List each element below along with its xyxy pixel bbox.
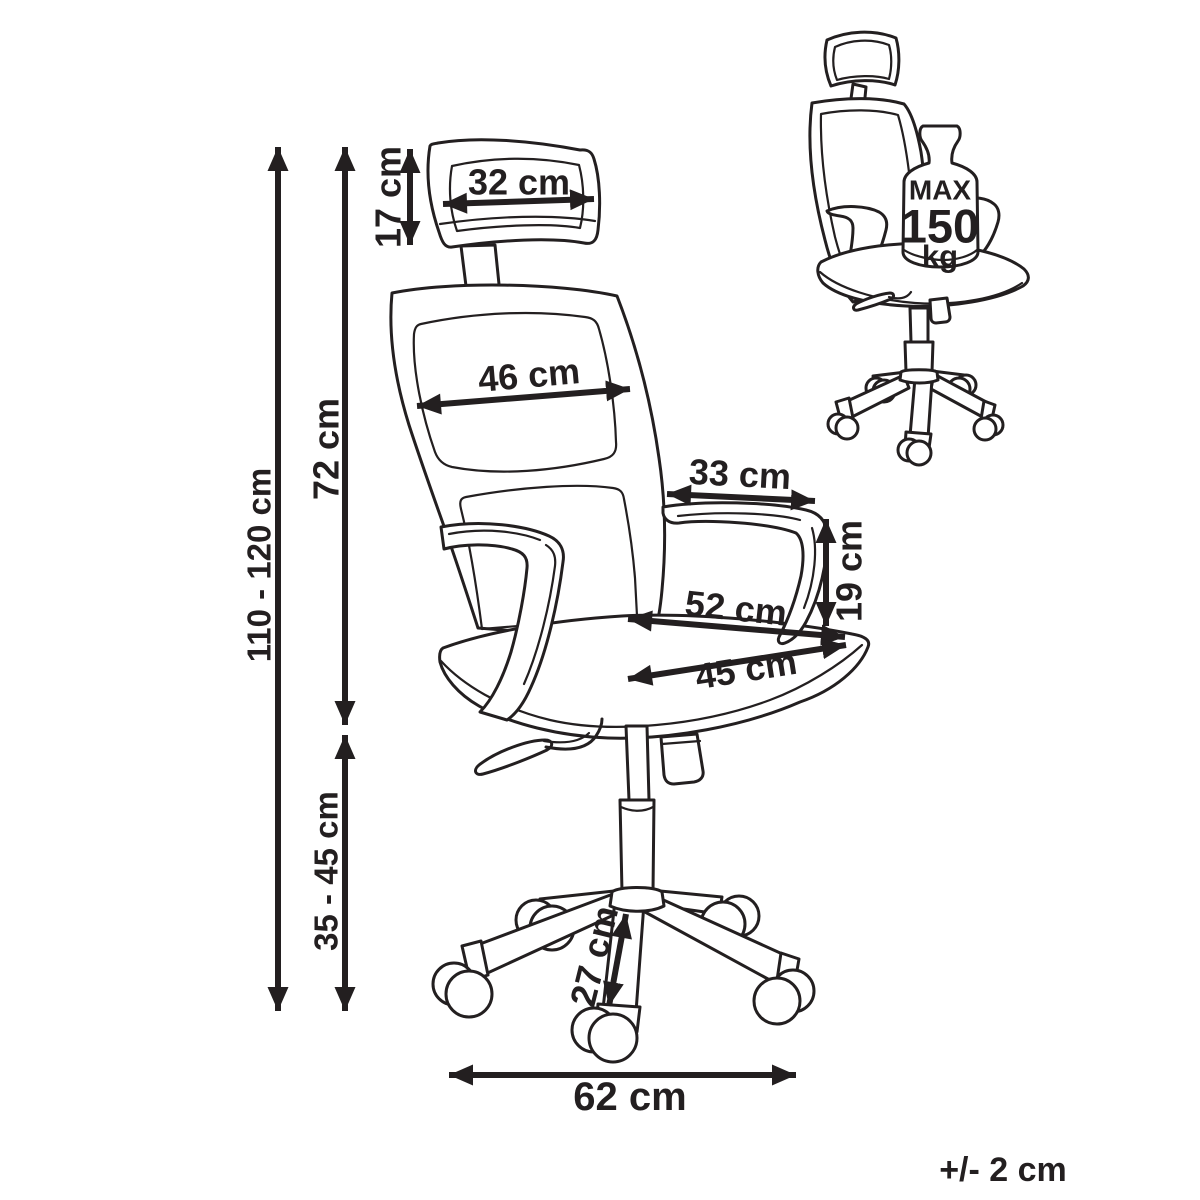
caster-right: [754, 970, 814, 1024]
dim-overall-height: 110 - 120 cm: [241, 147, 279, 1011]
dim-base-width: 62 cm: [449, 1075, 796, 1119]
dim-armrest-height: 19 cm: [826, 519, 870, 626]
dim-armrest-length: 33 cm: [667, 451, 815, 501]
dim-base-width-label: 62 cm: [573, 1075, 686, 1119]
dim-headrest-height: 17 cm: [368, 146, 411, 248]
dim-headrest-height-label: 17 cm: [368, 146, 409, 248]
small-caster-front: [898, 439, 931, 465]
tolerance-note: +/- 2 cm: [939, 1151, 1067, 1189]
chair-dimension-diagram: MAX 150 kg 32 cm 17 cm 46 cm 110 - 120 c…: [0, 0, 1200, 1200]
dim-backrest-height: 72 cm: [306, 147, 347, 725]
dim-armrest-height-label: 19 cm: [829, 520, 870, 622]
dim-backrest-height-label: 72 cm: [306, 398, 347, 500]
small-base-star: [828, 370, 1003, 465]
secondary-chair-drawing: MAX 150 kg: [810, 32, 1028, 465]
max-load-line3: kg: [922, 239, 958, 274]
dim-armrest-length-label: 33 cm: [688, 451, 792, 497]
small-caster-left: [828, 414, 858, 439]
gas-lift: [610, 726, 664, 911]
dim-headrest-width-label: 32 cm: [468, 162, 570, 203]
dim-seat-height: 35 - 45 cm: [308, 735, 346, 1011]
dim-seat-height-label: 35 - 45 cm: [308, 791, 345, 951]
small-caster-right: [974, 415, 1003, 440]
main-chair-drawing: [391, 140, 869, 1062]
small-gas-lift: [905, 308, 933, 372]
dim-overall-height-label: 110 - 120 cm: [241, 468, 278, 663]
small-headrest: [825, 32, 899, 86]
adjustment-knob: [661, 734, 703, 784]
diagram-canvas: MAX 150 kg 32 cm 17 cm 46 cm 110 - 120 c…: [0, 0, 1200, 1200]
small-knob: [930, 298, 950, 323]
